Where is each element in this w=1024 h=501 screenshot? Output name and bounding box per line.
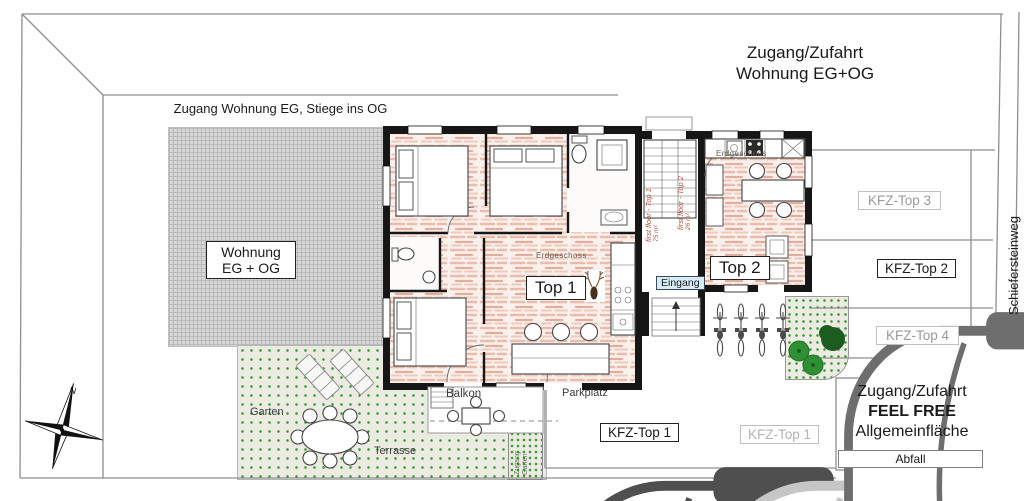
wohnung-eg-og-box: Wohnung EG + OG xyxy=(206,241,296,279)
street-label: Schiefersteinweg xyxy=(1006,135,1021,315)
access-north-label: Zugang/Zufahrt Wohnung EG+OG xyxy=(690,42,920,84)
stair-note-top1: first floor - Top 1 75 m² xyxy=(645,150,661,242)
stall-kfz-top1-label: KFZ-Top 1 xyxy=(600,423,679,442)
floor-label-top2: Erdgeschoss xyxy=(716,149,767,158)
garden-path-label: Zugang Garten xyxy=(514,429,529,475)
parking-area-label: Parkplatz xyxy=(562,387,608,399)
deer-head-icon xyxy=(584,270,605,302)
site-plan: N Zugang/Zufahrt Wohnung EG+OG Zugang Wo… xyxy=(0,0,1024,501)
waste-box-label: Abfall xyxy=(838,450,983,468)
stall-kfz-top1-ghost-label: KFZ-Top 1 xyxy=(740,425,819,444)
bush-icons xyxy=(789,325,845,375)
garden-table-set xyxy=(291,406,369,468)
island-counter xyxy=(512,324,609,375)
bed-1 xyxy=(396,146,468,216)
entrance-label: Eingang xyxy=(656,276,705,290)
floor-label-top1: Erdgeschoss xyxy=(536,251,587,260)
stall-kfz-top4-label: KFZ-Top 4 xyxy=(876,326,959,345)
compass-rose: N xyxy=(15,374,114,479)
stair-note-top2: first floor - Top 2 26 m² xyxy=(677,138,693,230)
garden-furniture xyxy=(291,349,374,468)
bike-rack xyxy=(713,304,790,356)
entrance-steps xyxy=(652,298,700,336)
garden-label: Garten xyxy=(250,406,284,418)
access-west-label: Zugang Wohnung EG, Stiege ins OG xyxy=(148,101,413,116)
unit-top2-label: Top 2 xyxy=(710,256,770,280)
kitchen-top1 xyxy=(611,243,635,335)
bed-3 xyxy=(394,298,466,366)
bed-2 xyxy=(490,146,562,216)
stall-kfz-top2-label: KFZ-Top 2 xyxy=(877,259,956,278)
north-porch xyxy=(646,117,692,130)
unit-top1-label: Top 1 xyxy=(526,276,586,300)
terrace-label: Terrasse xyxy=(374,445,416,457)
balcony-label: Balkon xyxy=(446,388,481,400)
common-area-label: Zugang/Zufahrt FEEL FREE Allgemeinfläche xyxy=(836,382,988,442)
compass-north-label: N xyxy=(69,385,78,396)
stall-kfz-top3-label: KFZ-Top 3 xyxy=(858,191,941,210)
